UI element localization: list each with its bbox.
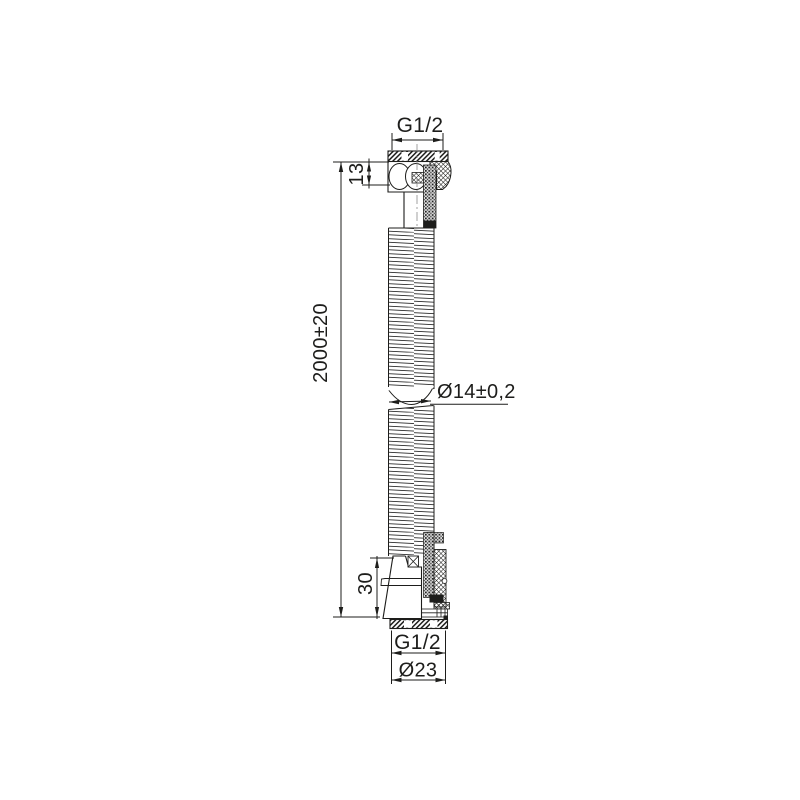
drawing-canvas: G1/2 13 2000±20 <box>0 0 800 800</box>
nut-diameter-label: Ø23 <box>399 660 438 682</box>
top-fitting-crimp-strip <box>424 165 437 228</box>
top-fitting-nut-band <box>388 151 448 162</box>
shower-hose-technical-drawing: G1/2 13 2000±20 <box>0 0 800 800</box>
dim-hose-length <box>333 162 389 617</box>
fitting-bottom-height-label: 30 <box>355 572 377 595</box>
hose-length-label: 2000±20 <box>310 303 332 383</box>
fitting-top-height-label: 13 <box>346 163 368 186</box>
bottom-fitting-crimp-strip <box>424 533 435 598</box>
bottom-fitting-weld-symbol <box>408 556 419 567</box>
bottom-fitting-step <box>434 603 450 610</box>
hose-upper-segment <box>388 228 434 405</box>
bottom-fitting-seal-block <box>430 595 444 603</box>
top-fitting-crimp-end <box>424 221 437 229</box>
bottom-fitting-pin <box>442 579 447 584</box>
thread-top-label: G1/2 <box>397 114 444 137</box>
hose-diameter-label: Ø14±0,2 <box>437 381 516 403</box>
thread-bottom-label: G1/2 <box>394 631 441 654</box>
